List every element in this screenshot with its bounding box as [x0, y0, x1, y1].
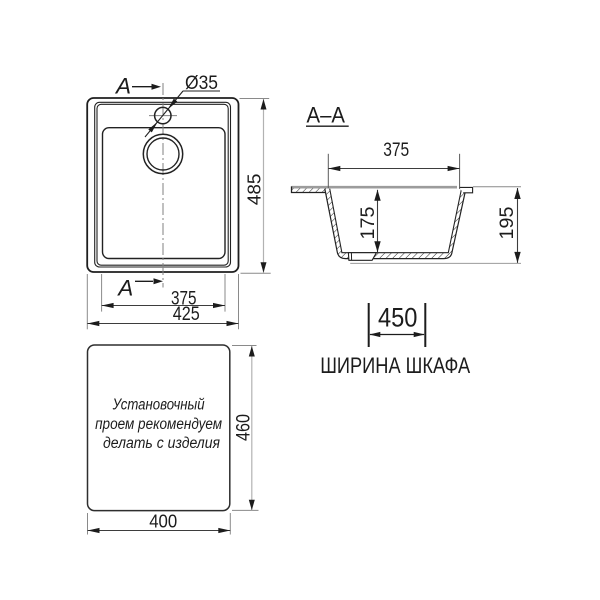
- svg-text:175: 175: [357, 206, 379, 239]
- svg-text:425: 425: [173, 304, 200, 325]
- svg-text:A: A: [114, 73, 131, 98]
- svg-text:Ø35: Ø35: [185, 72, 218, 94]
- svg-text:A: A: [116, 275, 133, 300]
- svg-text:375: 375: [383, 140, 409, 161]
- svg-text:делать с изделия: делать с изделия: [103, 435, 220, 452]
- svg-text:460: 460: [234, 414, 255, 441]
- svg-text:A–A: A–A: [307, 103, 346, 128]
- svg-text:450: 450: [378, 302, 418, 332]
- svg-text:ШИРИНА ШКАФА: ШИРИНА ШКАФА: [320, 353, 470, 378]
- svg-text:Установочный: Установочный: [112, 397, 205, 414]
- svg-text:485: 485: [244, 174, 265, 206]
- svg-text:195: 195: [496, 206, 518, 239]
- svg-text:проем рекомендуем: проем рекомендуем: [95, 416, 222, 433]
- svg-text:400: 400: [149, 511, 177, 531]
